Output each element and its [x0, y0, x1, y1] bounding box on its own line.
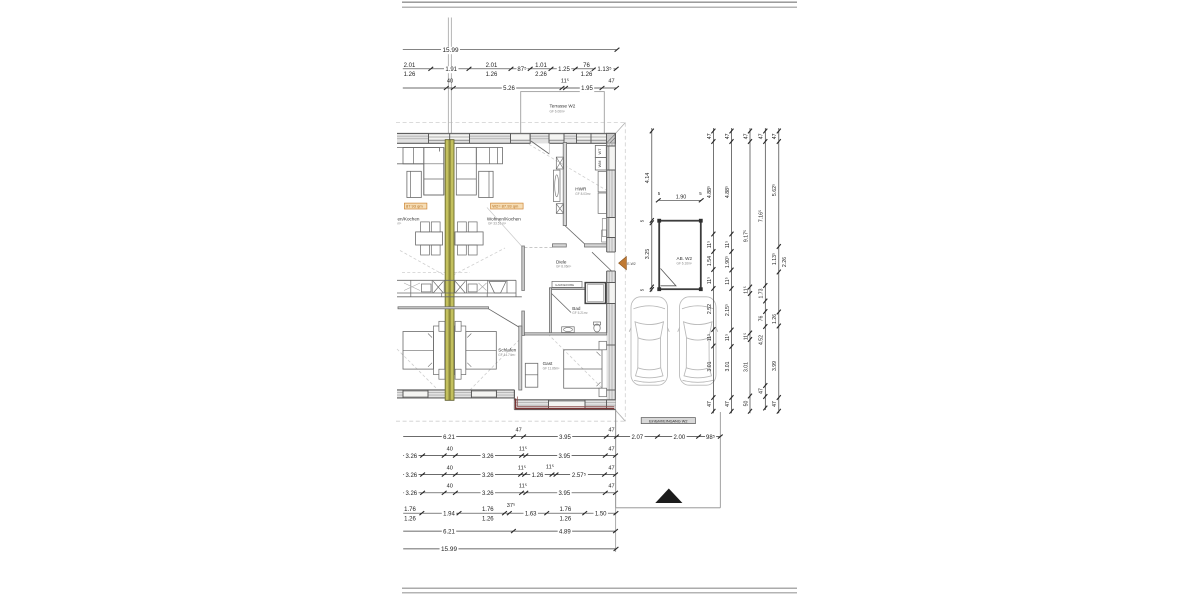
- svg-text:GF 14.74m²: GF 14.74m²: [498, 353, 515, 357]
- svg-text:76: 76: [583, 63, 590, 69]
- svg-text:1.26: 1.26: [581, 72, 593, 78]
- svg-text:1.26: 1.26: [560, 517, 572, 523]
- svg-text:3.26: 3.26: [482, 473, 494, 479]
- svg-text:11⁵: 11⁵: [707, 241, 713, 249]
- svg-text:HWR: HWR: [575, 187, 587, 192]
- svg-text:1.50: 1.50: [595, 511, 607, 517]
- svg-text:11⁵: 11⁵: [561, 78, 569, 85]
- svg-text:5: 5: [640, 288, 645, 291]
- svg-text:4.88⁵: 4.88⁵: [725, 186, 731, 198]
- svg-text:3.26: 3.26: [482, 491, 494, 497]
- svg-text:1.26: 1.26: [772, 314, 778, 324]
- svg-text:en/Kochen: en/Kochen: [398, 216, 420, 221]
- svg-text:3.26: 3.26: [405, 491, 417, 497]
- svg-text:3.26: 3.26: [482, 454, 494, 460]
- svg-text:AB. W2: AB. W2: [677, 256, 693, 261]
- svg-text:W2= 87.93 qm: W2= 87.93 qm: [492, 204, 519, 209]
- svg-text:11⁵: 11⁵: [519, 445, 527, 452]
- svg-text:47: 47: [608, 484, 614, 490]
- svg-text:47: 47: [707, 401, 713, 407]
- svg-text:47: 47: [608, 465, 614, 471]
- svg-text:2.07: 2.07: [631, 435, 643, 441]
- svg-text:47: 47: [759, 133, 765, 139]
- svg-text:40: 40: [447, 465, 453, 471]
- svg-text:37⁵: 37⁵: [507, 502, 516, 509]
- svg-text:Einfahrt/EINGANG W2: Einfahrt/EINGANG W2: [649, 419, 687, 423]
- svg-text:47: 47: [608, 446, 614, 452]
- svg-text:3.01: 3.01: [707, 361, 713, 371]
- svg-text:m²: m²: [398, 222, 402, 226]
- svg-text:Schlafen: Schlafen: [498, 348, 516, 353]
- svg-text:Gast: Gast: [543, 361, 553, 366]
- svg-text:47: 47: [772, 401, 778, 407]
- svg-text:1.01: 1.01: [535, 63, 547, 69]
- svg-text:GF 6.16m²: GF 6.16m²: [677, 261, 692, 265]
- svg-text:87⁵: 87⁵: [517, 66, 527, 73]
- svg-text:4.52: 4.52: [759, 335, 765, 345]
- svg-text:3.26: 3.26: [405, 454, 417, 460]
- svg-text:GF 6.06m²: GF 6.06m²: [550, 109, 565, 113]
- svg-text:7.16⁵: 7.16⁵: [759, 210, 765, 222]
- svg-text:2.26: 2.26: [782, 257, 788, 267]
- svg-text:3.25: 3.25: [645, 249, 651, 260]
- svg-text:11⁵: 11⁵: [518, 464, 526, 471]
- svg-text:GF 11.86m²: GF 11.86m²: [543, 366, 560, 370]
- svg-text:11⁵: 11⁵: [725, 277, 731, 285]
- svg-text:2.01: 2.01: [404, 63, 416, 69]
- svg-text:47: 47: [608, 79, 614, 85]
- svg-text:GARDEROBE: GARDEROBE: [555, 283, 574, 287]
- svg-text:3.95: 3.95: [559, 491, 571, 497]
- svg-text:1.26: 1.26: [482, 517, 494, 523]
- svg-text:GF 33.51 m²: GF 33.51 m²: [488, 222, 506, 226]
- svg-text:Diele: Diele: [556, 259, 567, 264]
- svg-text:40: 40: [447, 446, 453, 452]
- svg-text:3.26: 3.26: [405, 473, 417, 479]
- svg-text:50: 50: [743, 401, 749, 407]
- svg-text:1.26: 1.26: [532, 473, 544, 479]
- svg-text:47: 47: [515, 427, 521, 433]
- svg-text:5: 5: [658, 191, 661, 196]
- svg-text:98⁵: 98⁵: [706, 434, 716, 441]
- svg-text:15.99: 15.99: [443, 47, 459, 54]
- svg-text:11⁵: 11⁵: [725, 241, 731, 249]
- svg-text:2.26: 2.26: [535, 72, 547, 78]
- svg-text:GF 8.06m²: GF 8.06m²: [556, 265, 571, 269]
- svg-text:1.26: 1.26: [404, 517, 416, 523]
- svg-text:1.63: 1.63: [525, 511, 537, 517]
- svg-text:2.01: 2.01: [486, 63, 498, 69]
- svg-text:47: 47: [759, 388, 765, 394]
- svg-text:Wohnen/Kochen: Wohnen/Kochen: [487, 216, 521, 221]
- svg-text:11⁵: 11⁵: [743, 333, 749, 341]
- svg-text:3.01: 3.01: [743, 362, 749, 372]
- svg-text:1.76: 1.76: [482, 507, 494, 513]
- svg-text:76: 76: [759, 316, 765, 322]
- svg-text:GF 5.21m²: GF 5.21m²: [572, 311, 587, 315]
- svg-text:11⁵: 11⁵: [707, 277, 713, 285]
- svg-text:11⁵: 11⁵: [725, 334, 731, 342]
- svg-text:5: 5: [640, 219, 645, 222]
- svg-text:6.21: 6.21: [443, 435, 455, 441]
- svg-text:1.91: 1.91: [445, 67, 457, 73]
- svg-text:3.99: 3.99: [772, 361, 778, 371]
- svg-text:11⁵: 11⁵: [743, 286, 749, 294]
- svg-text:11⁵: 11⁵: [519, 483, 527, 490]
- svg-text:3.95: 3.95: [559, 454, 571, 460]
- svg-text:1.13⁵: 1.13⁵: [597, 66, 612, 73]
- svg-text:1.26: 1.26: [404, 72, 416, 78]
- svg-text:2.00: 2.00: [674, 435, 686, 441]
- svg-text:1.90⁵: 1.90⁵: [725, 256, 731, 268]
- svg-text:5.62⁵: 5.62⁵: [772, 184, 778, 196]
- svg-text:5: 5: [699, 191, 702, 196]
- svg-text:1.90: 1.90: [676, 195, 687, 201]
- svg-text:1.54: 1.54: [707, 256, 713, 266]
- svg-text:9.17⁵: 9.17⁵: [743, 230, 749, 242]
- svg-text:1.76: 1.76: [560, 507, 572, 513]
- svg-text:3.95: 3.95: [559, 435, 571, 441]
- svg-text:47: 47: [725, 133, 731, 139]
- svg-text:40: 40: [447, 79, 453, 85]
- svg-text:47: 47: [772, 133, 778, 139]
- svg-text:1.73: 1.73: [759, 288, 765, 298]
- svg-text:40: 40: [447, 484, 453, 490]
- svg-text:4.14: 4.14: [645, 173, 651, 184]
- svg-text:1.94: 1.94: [443, 511, 455, 517]
- svg-text:1.25: 1.25: [558, 67, 570, 73]
- svg-text:1.13⁵: 1.13⁵: [772, 253, 778, 265]
- svg-text:47: 47: [725, 401, 731, 407]
- svg-text:47: 47: [707, 133, 713, 139]
- svg-text:2.52: 2.52: [707, 304, 713, 314]
- svg-text:11⁵: 11⁵: [546, 463, 554, 470]
- svg-text:1.26: 1.26: [486, 72, 498, 78]
- svg-text:WT: WT: [598, 148, 602, 155]
- svg-text:GF 8.03m²: GF 8.03m²: [575, 192, 590, 196]
- svg-text:1.76: 1.76: [404, 507, 416, 513]
- svg-text:2.15⁵: 2.15⁵: [725, 304, 731, 316]
- svg-text:4.89: 4.89: [559, 529, 571, 535]
- svg-text:11⁵: 11⁵: [707, 334, 713, 342]
- svg-text:47: 47: [743, 133, 749, 139]
- svg-text:4.88⁵: 4.88⁵: [707, 186, 713, 198]
- svg-text:3.01: 3.01: [725, 361, 731, 371]
- svg-text:1.95: 1.95: [581, 86, 593, 92]
- svg-text:Terrasse W2: Terrasse W2: [550, 104, 576, 109]
- svg-text:15.99: 15.99: [441, 546, 457, 553]
- svg-text:5.26: 5.26: [503, 86, 515, 92]
- svg-text:87 93 qm: 87 93 qm: [406, 204, 423, 209]
- svg-text:E-W2: E-W2: [627, 262, 636, 266]
- svg-text:6.21: 6.21: [443, 529, 455, 535]
- svg-text:2.57⁵: 2.57⁵: [572, 472, 587, 479]
- svg-text:WM: WM: [598, 161, 602, 168]
- svg-text:47: 47: [608, 427, 614, 433]
